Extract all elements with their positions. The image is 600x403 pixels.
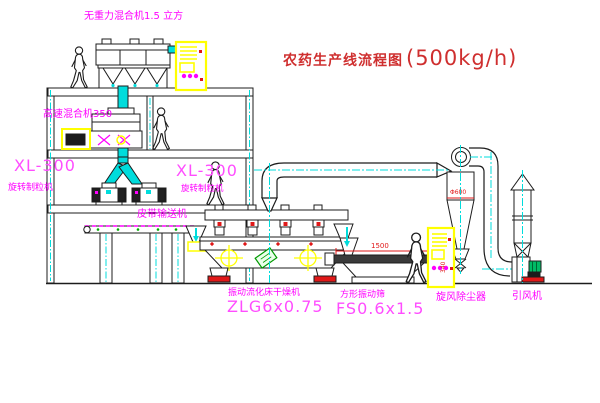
granulator-right-drawing bbox=[132, 183, 166, 205]
person-figure-top-floor bbox=[71, 47, 87, 88]
y-chute bbox=[104, 157, 142, 184]
control-cabinet-2 bbox=[428, 228, 454, 287]
control-cabinet-1 bbox=[176, 42, 206, 90]
granulator-left-drawing bbox=[92, 183, 126, 205]
dim-screen-length: 1500 bbox=[371, 243, 389, 250]
label-belt-conveyor: 皮带输送机 bbox=[137, 210, 187, 220]
label-screen-model: FS0.6x1.5 bbox=[336, 301, 424, 317]
gravity-free-mixer-drawing bbox=[96, 39, 180, 112]
stack-fan-drawing bbox=[511, 170, 544, 283]
title-capacity: (500kg/h) bbox=[406, 46, 517, 70]
dim-screen-height: 340 bbox=[441, 262, 447, 273]
person-figure-second-floor bbox=[153, 108, 170, 149]
title-text: 农药生产线流程图 bbox=[283, 50, 403, 70]
dim-cyclone-diameter: Φ600 bbox=[450, 190, 466, 196]
label-granulator-left-name: 旋转制粒机 bbox=[8, 184, 53, 193]
label-granulator-right-name: 旋转制粒机 bbox=[181, 185, 224, 194]
label-granulator-right-model: XL-300 bbox=[176, 163, 238, 179]
fluid-bed-dryer-drawing bbox=[200, 205, 348, 282]
cad-flow-diagram: 农药生产线流程图 (500kg/h) 无重力混合机1.5 立方 高速混合机350… bbox=[0, 0, 600, 403]
label-cyclone: 旋风除尘器 bbox=[436, 293, 486, 303]
label-gravity-free-mixer: 无重力混合机1.5 立方 bbox=[84, 12, 183, 22]
label-granulator-left-model: XL-300 bbox=[14, 158, 76, 174]
outlet-duct bbox=[469, 148, 514, 276]
drawing-title: 农药生产线流程图 (500kg/h) bbox=[283, 46, 517, 70]
belt-conveyor-drawing bbox=[84, 226, 196, 233]
label-high-speed-mixer: 高速混合机350 bbox=[43, 110, 112, 120]
label-fan: 引风机 bbox=[512, 292, 542, 302]
label-dryer-model: ZLG6x0.75 bbox=[227, 299, 324, 315]
